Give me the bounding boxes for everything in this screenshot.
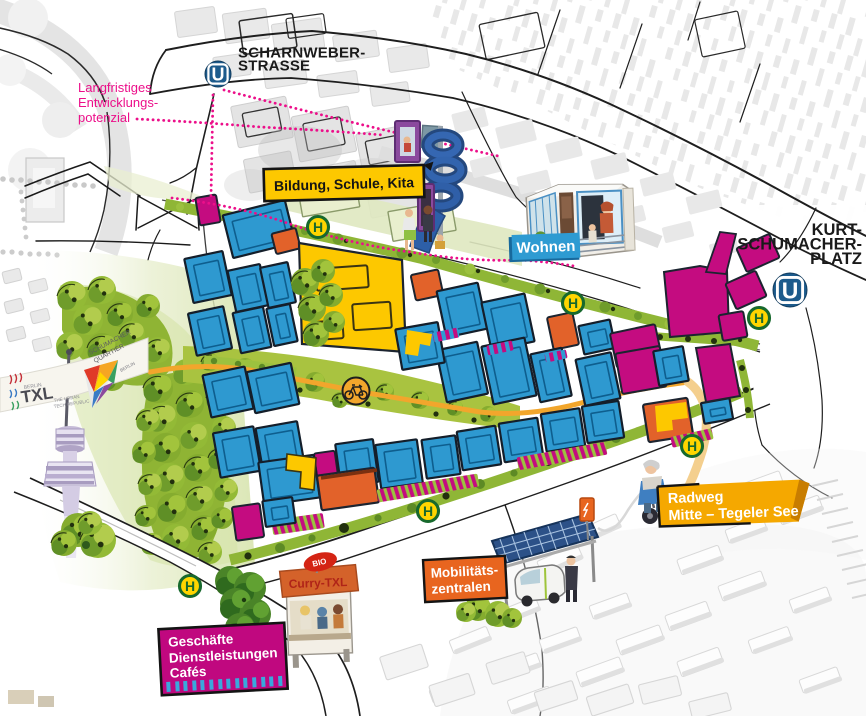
svg-text:Wohnen: Wohnen bbox=[516, 238, 575, 257]
svg-text:H: H bbox=[423, 503, 433, 519]
svg-text:PLATZ: PLATZ bbox=[810, 250, 862, 268]
svg-text:U: U bbox=[212, 65, 225, 85]
svg-text:Cafés: Cafés bbox=[169, 664, 207, 681]
svg-text:H: H bbox=[754, 310, 764, 326]
svg-text:zentralen: zentralen bbox=[431, 579, 491, 597]
svg-text:STRASSE: STRASSE bbox=[238, 58, 310, 75]
svg-text:H: H bbox=[185, 578, 195, 594]
svg-text:H: H bbox=[568, 295, 578, 311]
svg-text:H: H bbox=[687, 438, 697, 454]
svg-text:potenzial: potenzial bbox=[78, 110, 130, 125]
svg-text:Entwicklungs-: Entwicklungs- bbox=[78, 95, 158, 110]
svg-text:Langfristiges: Langfristiges bbox=[78, 80, 152, 95]
svg-text:Curry-TXL: Curry-TXL bbox=[288, 575, 347, 591]
svg-text:H: H bbox=[313, 219, 323, 235]
svg-text:Radweg: Radweg bbox=[668, 489, 724, 507]
svg-text:U: U bbox=[782, 278, 799, 304]
